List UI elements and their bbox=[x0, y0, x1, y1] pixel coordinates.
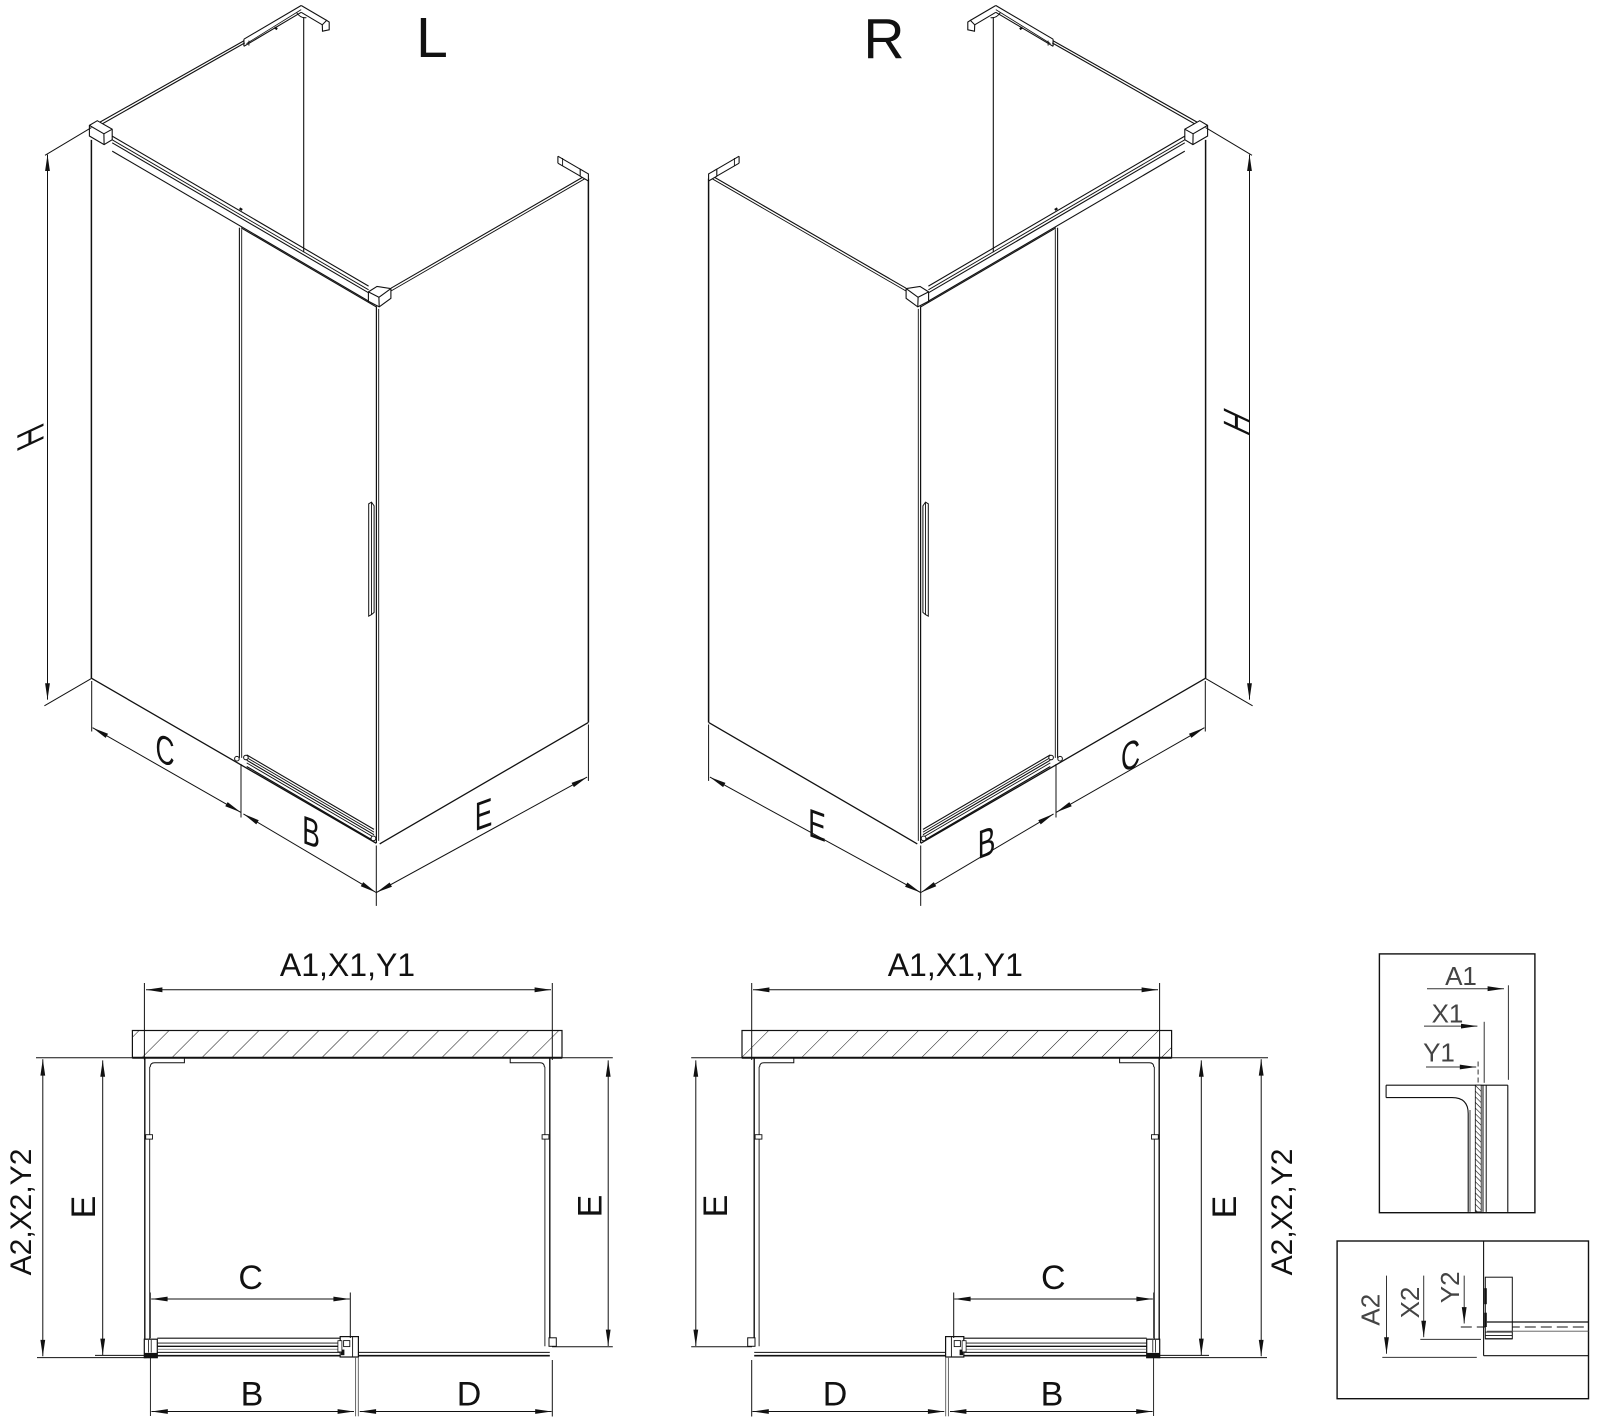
svg-text:B: B bbox=[302, 808, 320, 858]
svg-text:A1,X1,Y1: A1,X1,Y1 bbox=[888, 947, 1023, 983]
svg-text:L: L bbox=[416, 6, 448, 70]
svg-text:C: C bbox=[1121, 731, 1140, 782]
svg-text:X2: X2 bbox=[1395, 1287, 1425, 1319]
svg-text:A1: A1 bbox=[1445, 961, 1477, 991]
svg-text:R: R bbox=[863, 7, 904, 71]
svg-text:E: E bbox=[808, 801, 826, 851]
svg-text:Y2: Y2 bbox=[1435, 1271, 1465, 1303]
svg-text:E: E bbox=[65, 1196, 103, 1219]
svg-text:Y1: Y1 bbox=[1423, 1038, 1455, 1068]
svg-text:B: B bbox=[1041, 1375, 1064, 1413]
svg-text:C: C bbox=[238, 1259, 263, 1297]
svg-text:A2,X2,Y2: A2,X2,Y2 bbox=[1266, 1149, 1299, 1276]
svg-text:C: C bbox=[155, 726, 174, 777]
svg-text:C: C bbox=[1041, 1259, 1066, 1297]
svg-text:B: B bbox=[241, 1375, 264, 1413]
svg-text:E: E bbox=[572, 1195, 610, 1218]
svg-text:A1,X1,Y1: A1,X1,Y1 bbox=[280, 947, 415, 983]
svg-text:E: E bbox=[697, 1195, 735, 1218]
svg-text:X1: X1 bbox=[1432, 999, 1464, 1029]
svg-text:B: B bbox=[978, 818, 996, 868]
svg-text:D: D bbox=[823, 1375, 848, 1413]
svg-text:D: D bbox=[457, 1375, 482, 1413]
svg-text:A2,X2,Y2: A2,X2,Y2 bbox=[5, 1149, 38, 1276]
svg-text:A2: A2 bbox=[1356, 1294, 1386, 1326]
svg-text:E: E bbox=[1206, 1196, 1244, 1219]
svg-text:E: E bbox=[475, 790, 493, 840]
